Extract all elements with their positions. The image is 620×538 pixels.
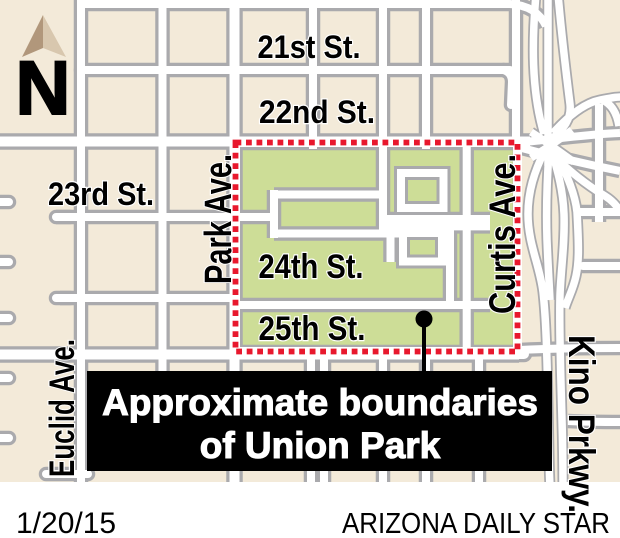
svg-text:N: N xyxy=(16,46,71,131)
svg-text:ARIZONA DAILY STAR: ARIZONA DAILY STAR xyxy=(342,508,610,538)
svg-text:Approximate boundaries: Approximate boundaries xyxy=(102,382,538,423)
svg-text:Park Ave.: Park Ave. xyxy=(198,154,240,284)
svg-text:Curtis Ave.: Curtis Ave. xyxy=(482,154,523,314)
svg-text:24th St.: 24th St. xyxy=(259,248,364,286)
svg-text:1/20/15: 1/20/15 xyxy=(16,507,116,538)
svg-text:25th St.: 25th St. xyxy=(259,310,366,348)
svg-text:Kino Prkwy.: Kino Prkwy. xyxy=(561,335,602,513)
svg-text:of Union Park: of Union Park xyxy=(200,425,441,466)
svg-text:23rd St.: 23rd St. xyxy=(48,176,154,212)
svg-text:21st St.: 21st St. xyxy=(258,29,361,65)
svg-text:22nd St.: 22nd St. xyxy=(259,94,375,130)
svg-text:Euclid Ave.: Euclid Ave. xyxy=(43,339,82,477)
